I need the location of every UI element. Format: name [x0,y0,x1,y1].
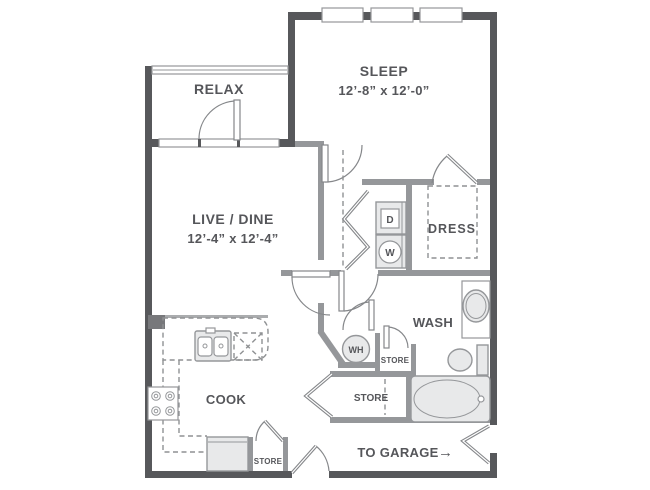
store-pantry-label: STORE [254,457,283,466]
balcony-door-leaf [234,100,240,140]
wall-balcony-east [288,12,295,147]
relax-label: RELAX [194,81,244,97]
sleep-label: SLEEP [360,63,408,79]
wall-south-right [329,471,497,478]
hall-door-arc [292,277,330,315]
store-linen-label: STORE [381,356,410,365]
kitchen-counter-left-inner [179,360,207,436]
livedine-label: LIVE / DINE [192,211,274,227]
sill-jamb-left [198,139,201,147]
kitchen-faucet [206,328,215,333]
store-hall-label: STORE [354,393,389,404]
wall-pantry-east [283,437,288,471]
window-sleep-2 [371,8,413,22]
wall-linen-west [375,333,380,377]
dress-label: DRESS [428,222,476,236]
wall-sleep-south [362,179,434,185]
washer-label: W [385,248,395,259]
dress-door-arc [432,156,447,183]
wash-door-leaf [339,271,344,311]
store-double-door-inner [306,374,332,417]
sink-bowl-right [214,337,228,356]
cook-label: COOK [206,392,247,407]
dryer-label: D [386,215,393,226]
wall-store-top [330,371,412,377]
wall-wh-diagonal [320,331,343,364]
pantry-door-leaf-inner [265,421,283,441]
sleep-door-leaf [322,145,328,182]
wall-wh-west [318,303,324,333]
dress-door-leaf-inner [447,155,477,183]
wh-door-arc [343,302,371,330]
balcony-door-arc [199,101,237,139]
linen-door-arc [387,327,408,348]
balcony-door-sill [159,139,279,147]
floor-plan-canvas: RELAX SLEEP 12’-8” x 12’-0” LIVE / DINE … [0,0,650,490]
range [148,387,178,420]
water-heater-label: WH [349,345,364,355]
window-sleep-1 [322,8,363,22]
wall-south-left [145,471,292,478]
entry-door-leaf-inner [292,446,316,473]
floor-plan: RELAX SLEEP 12’-8” x 12’-0” LIVE / DINE … [0,0,650,490]
wall-wh-south [338,362,380,368]
window-sleep-3 [420,8,462,22]
bathtub-faucet [478,396,484,402]
sink-bowl-left [198,337,212,356]
laundry-bifold-doors [344,191,368,269]
wall-east [490,12,497,425]
windows [152,8,462,147]
wall-dress-top-right [477,179,490,185]
bathroom-sink [463,290,489,322]
wall-threshold-stub-left [145,139,160,147]
linen-door-leaf [384,326,389,348]
wall-hall-stub-left [281,270,292,276]
wash-label: WASH [413,315,453,330]
dishwasher-x [234,333,262,360]
wall-wash-north [378,270,490,276]
pantry-door-arc [256,421,265,441]
wall-pantry-west [248,437,253,471]
wh-door-leaf [369,300,374,330]
store-double-door [306,374,332,417]
wall-laundry-east [406,179,412,276]
entry-door-arc [316,446,329,471]
wall-threshold-stub-right [278,139,295,147]
sleep-dims: 12’-8” x 12’-0” [338,83,429,98]
garage-arrow-icon: → [438,444,453,461]
to-garage-label: TO GARAGE [357,445,438,460]
toilet-tank [477,345,488,375]
livedine-dims: 12’-4” x 12’-4” [187,231,278,246]
toilet-bowl [448,349,472,371]
hall-door-leaf [292,271,330,277]
